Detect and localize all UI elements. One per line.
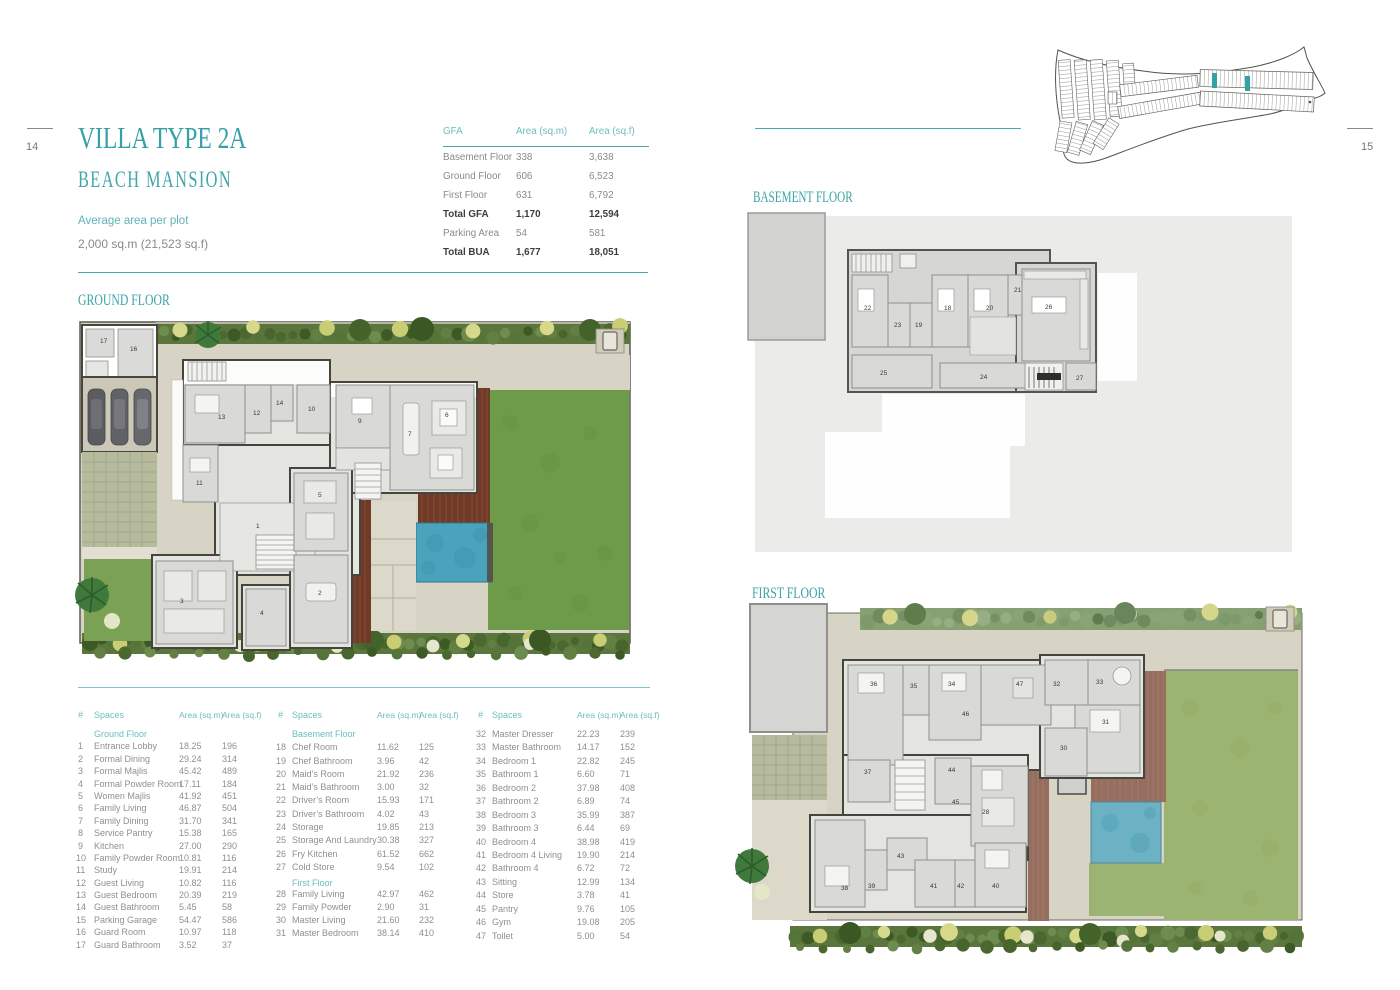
svg-text:12: 12 bbox=[253, 410, 261, 417]
svg-text:27: 27 bbox=[1076, 375, 1084, 382]
svg-text:7: 7 bbox=[408, 431, 412, 438]
svg-text:22: 22 bbox=[864, 305, 872, 312]
svg-text:28: 28 bbox=[982, 809, 990, 816]
svg-text:19: 19 bbox=[915, 322, 923, 329]
svg-text:34: 34 bbox=[948, 681, 956, 688]
svg-text:25: 25 bbox=[880, 370, 888, 377]
svg-text:13: 13 bbox=[218, 414, 226, 421]
svg-text:9: 9 bbox=[358, 418, 362, 425]
svg-text:47: 47 bbox=[1016, 681, 1024, 688]
svg-text:41: 41 bbox=[930, 883, 938, 890]
svg-text:31: 31 bbox=[1102, 719, 1110, 726]
svg-text:14: 14 bbox=[276, 400, 284, 407]
svg-text:39: 39 bbox=[868, 883, 876, 890]
svg-text:43: 43 bbox=[897, 853, 905, 860]
svg-text:46: 46 bbox=[962, 711, 970, 718]
svg-text:36: 36 bbox=[870, 681, 878, 688]
svg-text:26: 26 bbox=[1045, 304, 1053, 311]
svg-text:10: 10 bbox=[308, 406, 316, 413]
svg-text:44: 44 bbox=[948, 767, 956, 774]
svg-text:23: 23 bbox=[894, 322, 902, 329]
svg-text:38: 38 bbox=[841, 885, 849, 892]
svg-text:37: 37 bbox=[864, 769, 872, 776]
svg-text:18: 18 bbox=[944, 305, 952, 312]
svg-text:4: 4 bbox=[260, 610, 264, 617]
svg-text:1: 1 bbox=[256, 523, 260, 530]
svg-text:24: 24 bbox=[980, 374, 988, 381]
svg-text:35: 35 bbox=[910, 683, 918, 690]
svg-text:6: 6 bbox=[445, 412, 449, 419]
svg-text:17: 17 bbox=[100, 338, 108, 345]
svg-text:30: 30 bbox=[1060, 745, 1068, 752]
svg-text:16: 16 bbox=[130, 346, 138, 353]
svg-text:3: 3 bbox=[180, 598, 184, 605]
svg-text:32: 32 bbox=[1053, 681, 1061, 688]
svg-text:5: 5 bbox=[318, 492, 322, 499]
svg-text:2: 2 bbox=[318, 590, 322, 597]
svg-text:42: 42 bbox=[957, 883, 965, 890]
svg-text:40: 40 bbox=[992, 883, 1000, 890]
svg-text:20: 20 bbox=[986, 305, 994, 312]
svg-text:33: 33 bbox=[1096, 679, 1104, 686]
svg-text:45: 45 bbox=[952, 799, 960, 806]
svg-text:11: 11 bbox=[196, 480, 203, 487]
svg-text:21: 21 bbox=[1014, 287, 1022, 294]
